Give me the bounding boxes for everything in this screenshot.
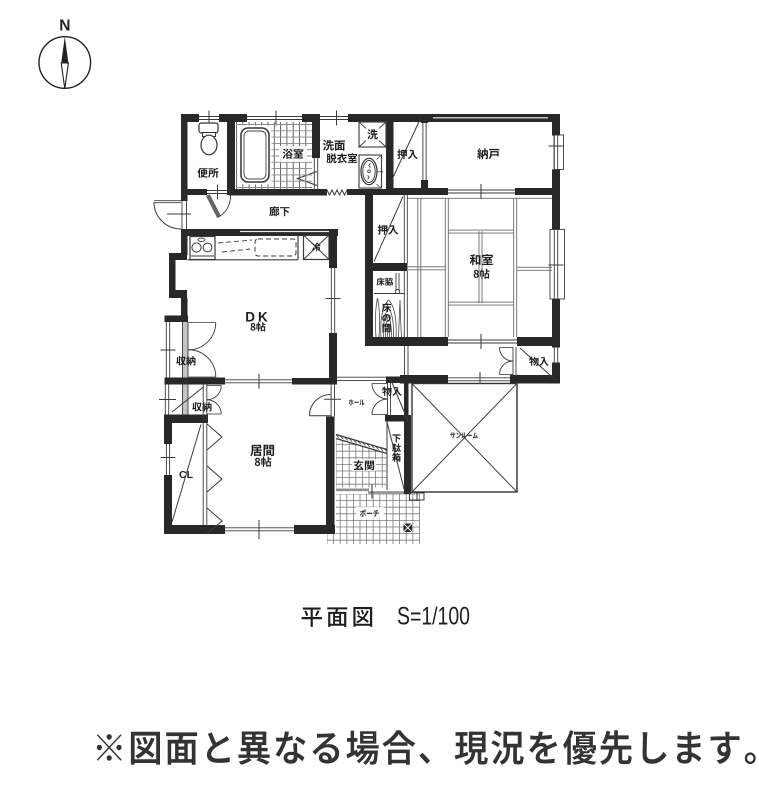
svg-text:S=1/100: S=1/100 [397,603,470,631]
svg-text:N: N [59,18,70,35]
svg-text:CL: CL [179,469,194,481]
